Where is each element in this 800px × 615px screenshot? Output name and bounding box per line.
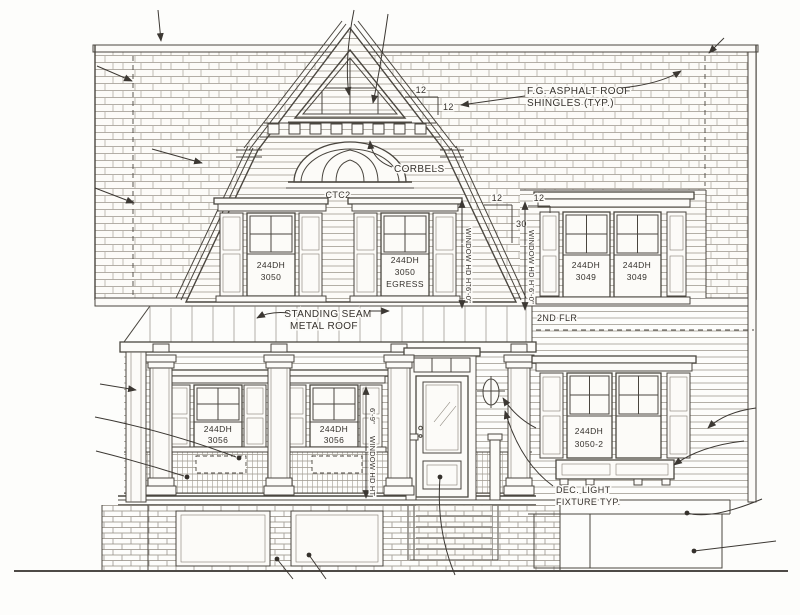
dormer-right-window-tag: 244DH [623, 260, 651, 270]
dim-gable-label: WINDOW HD HT [464, 228, 473, 289]
dim-dormer-label: WINDOW HD HT [527, 230, 536, 291]
corbels-label: CORBELS [394, 164, 445, 175]
dormer-window-sill [536, 297, 690, 304]
roof-note-line1: F.G. ASPHALT ROOF [527, 86, 631, 97]
second-floor-label: 2ND FLR [537, 313, 577, 323]
porch-post [264, 355, 294, 495]
elevation-drawing-sheet: 244DH 3049 244DH 3049 [0, 0, 800, 615]
pitch-lower-run: 12 [492, 193, 503, 203]
roof-note-line2: SHINGLES (TYP.) [527, 98, 614, 109]
gable-right-window-size: 3050 [395, 267, 416, 277]
standing-seam-line1: STANDING SEAM [284, 309, 371, 320]
gable-window-left: 244DH 3050 [214, 198, 328, 302]
shed-dormer: 244DH 3049 244DH 3049 [520, 190, 706, 304]
skirt-vent-center [312, 456, 362, 473]
dormer-left-window-size: 3049 [576, 272, 597, 282]
wing-window-size: 3050-2 [575, 439, 604, 449]
porch-post [146, 355, 176, 495]
dormer-left-window-tag: 244DH [572, 260, 600, 270]
lattice-panel-left [176, 511, 270, 566]
pitch-upper-rise: 12 [443, 102, 454, 112]
porch-left-window-tag: 244DH [204, 424, 232, 434]
porch-left-window-size: 3056 [208, 435, 229, 445]
dormer-window-head-trim [538, 199, 690, 207]
porch-center-window-size: 3056 [324, 435, 345, 445]
standing-seam-line2: METAL ROOF [290, 321, 358, 332]
lattice-panel-right [291, 511, 383, 566]
foundation [14, 505, 788, 571]
porch-corner-board [126, 352, 146, 502]
gable-right-window-egress: EGRESS [386, 279, 424, 289]
arch-window-tag: CTC2 [325, 190, 350, 200]
gable-left-window-tag: 244DH [257, 260, 285, 270]
pitch-dormer-run: 12 [534, 193, 545, 203]
dim-gable-value: 6'-0" [464, 287, 473, 303]
porch-post [504, 355, 534, 495]
pitch-upper-run: 12 [416, 85, 427, 95]
gable-left-window-size: 3050 [261, 272, 282, 282]
stucco-leader-2 [694, 541, 776, 551]
stucco-foundation [534, 514, 722, 568]
dormer-window-head-cap [534, 192, 694, 199]
dec-light-line1: DEC. LIGHT [556, 485, 611, 495]
newel-right [490, 440, 500, 500]
door-transom [414, 358, 470, 372]
dim-dormer-value: 6'-0" [527, 288, 536, 304]
porch-post [384, 355, 414, 495]
right-corner-board [748, 52, 756, 502]
porch-center-window-tag: 244DH [320, 424, 348, 434]
door-head-cap [404, 348, 480, 356]
gable-window-right: 244DH 3050 EGRESS [348, 198, 462, 302]
dim-first-label: WINDOW HD HT [368, 436, 377, 497]
wing-window-tag: 244DH [575, 426, 603, 436]
porch-window-left: 244DH 3056 [161, 370, 273, 452]
dim-first-value: 6'-9" [368, 408, 377, 424]
roof-ridge-fascia [93, 45, 758, 52]
door-slab [416, 376, 468, 497]
gable-right-window-tag: 244DH [391, 255, 419, 265]
dec-light-line2: FIXTURE TYP. [556, 497, 620, 507]
standing-seam-leader-left [257, 313, 288, 318]
dormer-right-window-size: 3049 [627, 272, 648, 282]
ridge-pointer-arrow [158, 10, 161, 41]
front-elevation-svg: 244DH 3049 244DH 3049 [0, 0, 800, 615]
